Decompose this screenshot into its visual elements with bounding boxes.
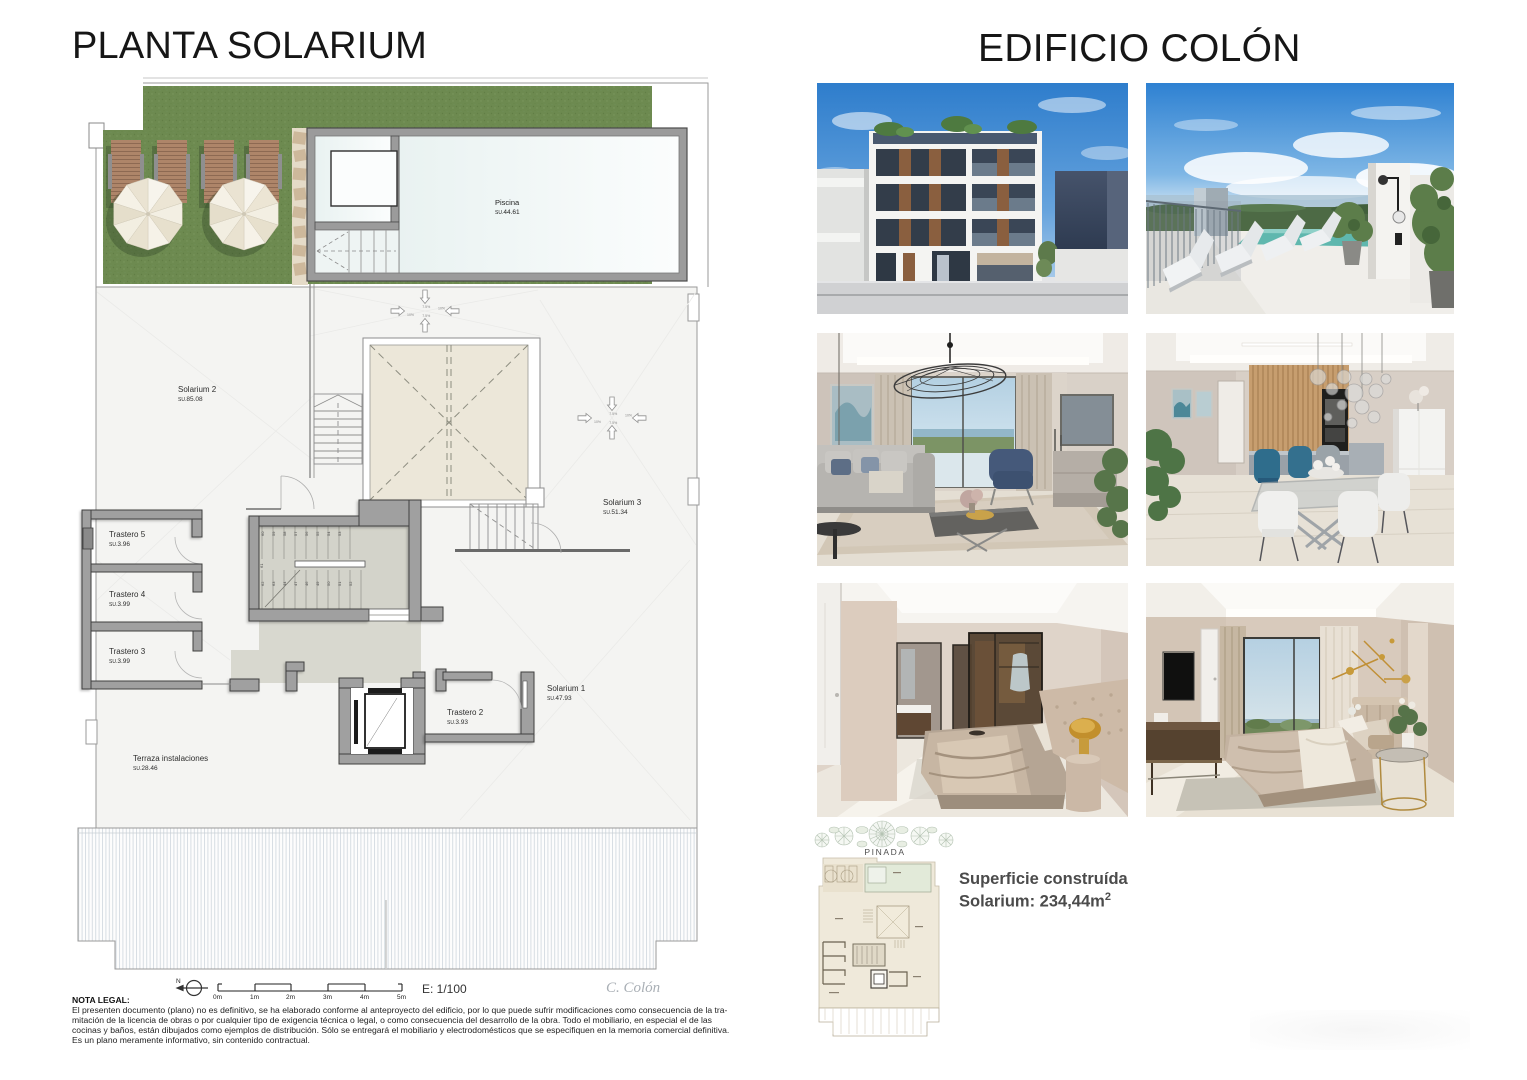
svg-text:47: 47 — [293, 581, 298, 586]
svg-text:N: N — [176, 978, 181, 985]
svg-text:7.5%: 7.5% — [422, 314, 430, 318]
svg-text:10%: 10% — [625, 414, 632, 418]
svg-text:62: 62 — [260, 581, 265, 586]
svg-text:54: 54 — [326, 531, 331, 536]
svg-text:Terraza instalaciones: Terraza instalaciones — [133, 754, 208, 763]
svg-text:10%: 10% — [407, 313, 414, 317]
svg-text:Trastero 5: Trastero 5 — [109, 530, 146, 539]
svg-text:SU.3.96: SU.3.96 — [109, 541, 130, 548]
svg-text:10%: 10% — [438, 307, 445, 311]
svg-text:SU.47.93: SU.47.93 — [547, 695, 572, 702]
svg-text:C. Colón: C. Colón — [606, 980, 660, 996]
svg-text:SU.51.34: SU.51.34 — [603, 509, 628, 516]
svg-text:59: 59 — [271, 531, 276, 536]
svg-text:50: 50 — [326, 581, 331, 586]
svg-text:4m: 4m — [360, 994, 369, 1001]
svg-text:51: 51 — [337, 581, 342, 586]
svg-text:7.5%: 7.5% — [422, 305, 430, 309]
svg-text:Trastero 4: Trastero 4 — [109, 590, 146, 599]
svg-text:10%: 10% — [594, 420, 601, 424]
svg-text:SU.28.46: SU.28.46 — [133, 765, 158, 772]
svg-text:Solarium 3: Solarium 3 — [603, 498, 642, 507]
svg-text:Piscina: Piscina — [495, 198, 520, 207]
svg-text:49: 49 — [315, 581, 320, 586]
svg-text:SU.3.99: SU.3.99 — [109, 658, 130, 665]
svg-text:3m: 3m — [323, 994, 332, 1001]
svg-text:SU.85.08: SU.85.08 — [178, 396, 203, 403]
svg-text:NOTA LEGAL:: NOTA LEGAL: — [72, 995, 130, 1005]
svg-text:7.5%: 7.5% — [609, 421, 617, 425]
svg-text:61: 61 — [259, 563, 264, 568]
svg-text:SU.3.99: SU.3.99 — [109, 601, 130, 608]
svg-text:Solarium 2: Solarium 2 — [178, 385, 217, 394]
svg-text:60: 60 — [260, 531, 265, 536]
svg-text:58: 58 — [282, 531, 287, 536]
svg-text:0m: 0m — [213, 994, 222, 1001]
svg-text:SU.44.61: SU.44.61 — [495, 209, 520, 216]
svg-text:1m: 1m — [250, 994, 259, 1001]
svg-text:63: 63 — [271, 581, 276, 586]
svg-text:44: 44 — [282, 581, 287, 586]
svg-text:2m: 2m — [286, 994, 295, 1001]
svg-text:52: 52 — [348, 581, 353, 586]
svg-text:cocinas y baños, están dibujad: cocinas y baños, están dibujados como ej… — [72, 1025, 729, 1035]
svg-text:Trastero 2: Trastero 2 — [447, 708, 484, 717]
svg-text:7.5%: 7.5% — [609, 412, 617, 416]
svg-text:Solarium 1: Solarium 1 — [547, 684, 586, 693]
svg-text:El presenten documento (plano): El presenten documento (plano) no es def… — [72, 1005, 728, 1015]
svg-text:55: 55 — [315, 531, 320, 536]
svg-text:mitación de la licencia de obr: mitación de la licencia de obras o por c… — [72, 1015, 712, 1025]
svg-text:5m: 5m — [397, 994, 406, 1001]
svg-text:57: 57 — [293, 531, 298, 536]
svg-text:46: 46 — [304, 581, 309, 586]
svg-text:Es un plano meramente informat: Es un plano meramente informativo, sin c… — [72, 1035, 310, 1045]
svg-text:E: 1/100: E: 1/100 — [422, 982, 467, 996]
svg-text:Trastero 3: Trastero 3 — [109, 647, 146, 656]
svg-text:SU.3.93: SU.3.93 — [447, 719, 468, 726]
svg-text:53: 53 — [337, 531, 342, 536]
svg-text:56: 56 — [304, 531, 309, 536]
